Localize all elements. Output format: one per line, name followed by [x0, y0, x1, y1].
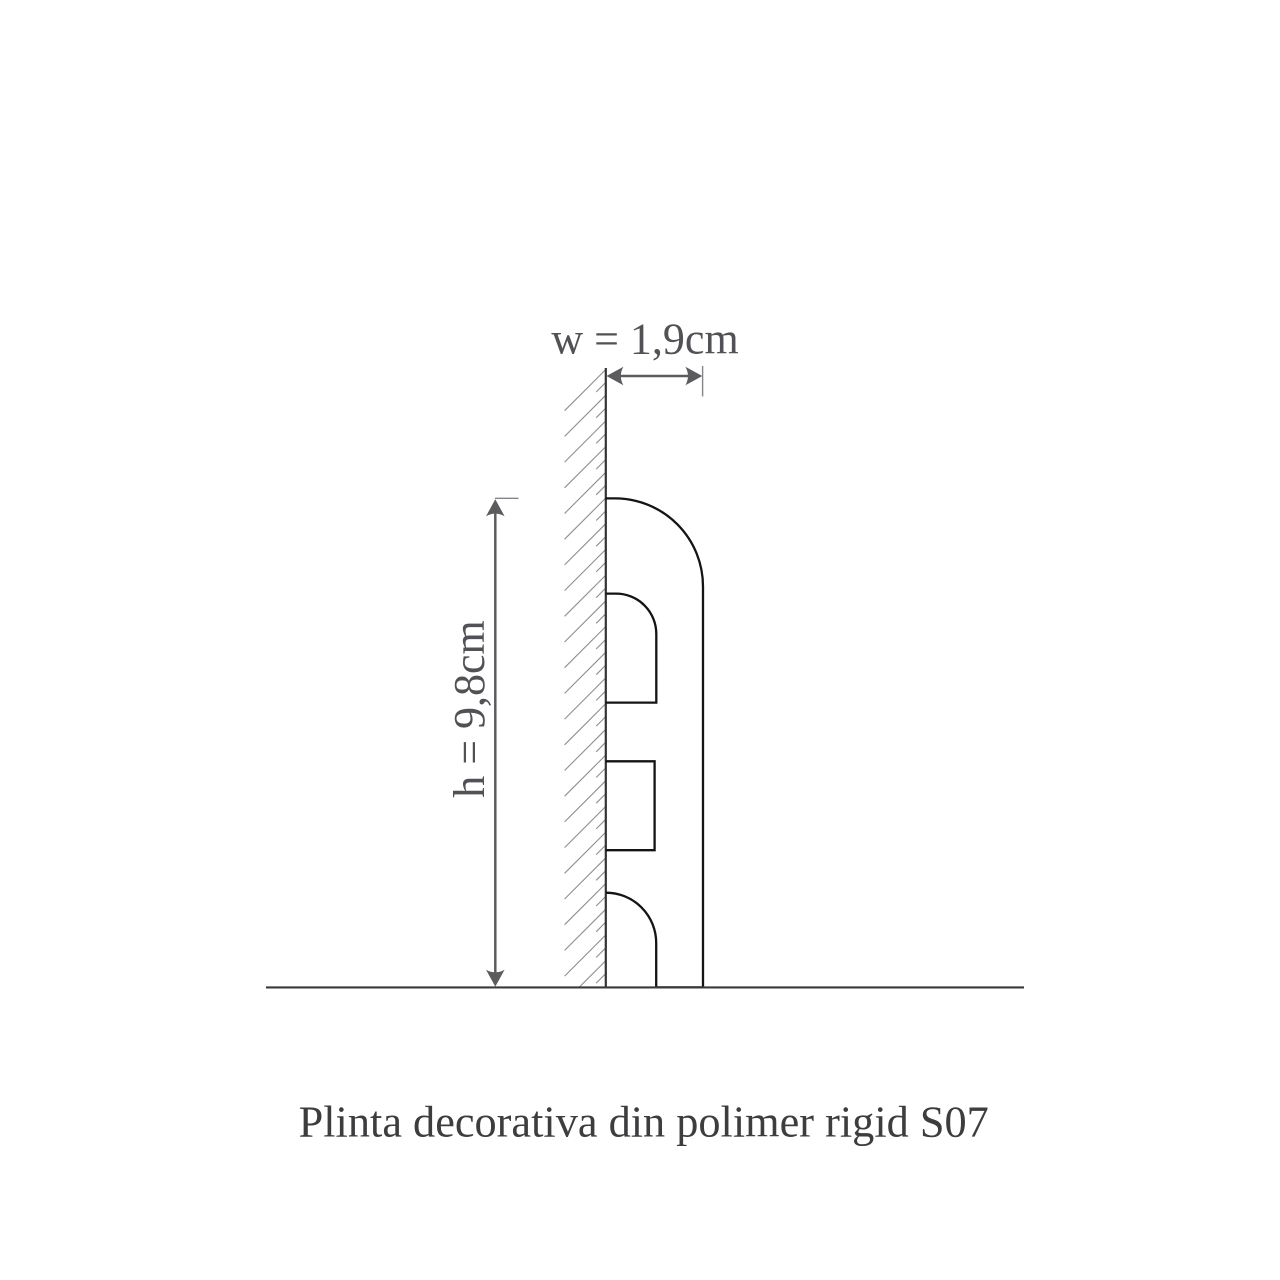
svg-text:Plinta decorativa din polimer: Plinta decorativa din polimer rigid S07 [299, 1098, 989, 1147]
svg-text:w = 1,9cm: w = 1,9cm [551, 315, 738, 364]
svg-text:h = 9,8cm: h = 9,8cm [445, 620, 494, 798]
